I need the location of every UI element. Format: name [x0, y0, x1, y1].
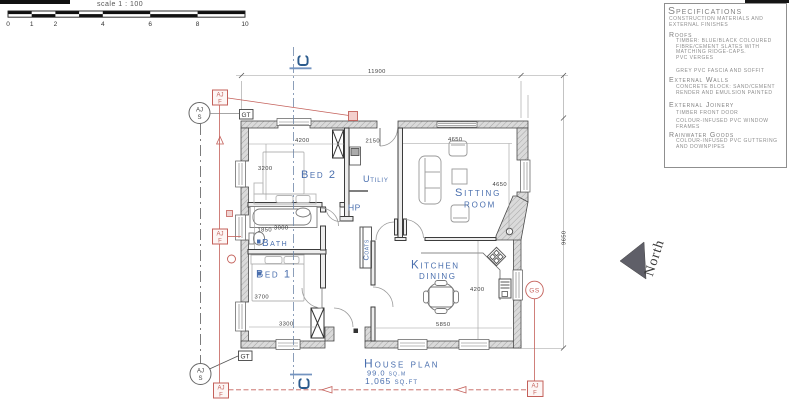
svg-text:9650: 9650	[562, 231, 568, 246]
svg-text:3000: 3000	[274, 226, 289, 232]
svg-text:GT: GT	[240, 354, 249, 361]
svg-text:Bed 1: Bed 1	[256, 269, 292, 281]
svg-text:F: F	[533, 391, 537, 397]
svg-text:GS: GS	[529, 288, 540, 295]
svg-text:Bath: Bath	[262, 238, 288, 249]
svg-text:4200: 4200	[295, 138, 310, 144]
svg-text:AJ: AJ	[197, 369, 204, 375]
svg-text:AJ: AJ	[216, 93, 223, 99]
svg-text:4200: 4200	[470, 287, 485, 293]
svg-text:3200: 3200	[258, 166, 273, 172]
svg-text:AJ: AJ	[216, 232, 223, 238]
svg-text:S: S	[198, 376, 202, 382]
svg-text:AJ: AJ	[217, 386, 224, 392]
svg-text:11900: 11900	[368, 69, 386, 75]
svg-text:F: F	[218, 239, 222, 245]
svg-text:Utiliy: Utiliy	[363, 174, 389, 184]
svg-text:dining: dining	[419, 270, 457, 282]
svg-text:3300: 3300	[279, 322, 294, 328]
svg-text:2150: 2150	[366, 139, 381, 145]
svg-text:North: North	[642, 238, 668, 278]
svg-text:3700: 3700	[255, 295, 270, 301]
svg-text:Coats: Coats	[362, 239, 371, 260]
svg-text:1,065 sq.ft: 1,065 sq.ft	[365, 376, 418, 386]
svg-text:AJ: AJ	[196, 108, 203, 114]
svg-text:F: F	[218, 100, 222, 106]
svg-text:GT: GT	[241, 112, 250, 119]
svg-text:AJ: AJ	[531, 384, 538, 390]
svg-text:1850: 1850	[258, 228, 273, 234]
svg-text:4650: 4650	[448, 137, 463, 143]
svg-text:5850: 5850	[436, 322, 451, 328]
svg-text:S: S	[197, 115, 201, 121]
svg-text:room: room	[464, 199, 496, 211]
svg-text:F: F	[219, 393, 223, 399]
svg-text:Bed 2: Bed 2	[301, 169, 337, 181]
svg-text:Sitting: Sitting	[455, 187, 501, 199]
svg-text:HP: HP	[348, 203, 361, 213]
